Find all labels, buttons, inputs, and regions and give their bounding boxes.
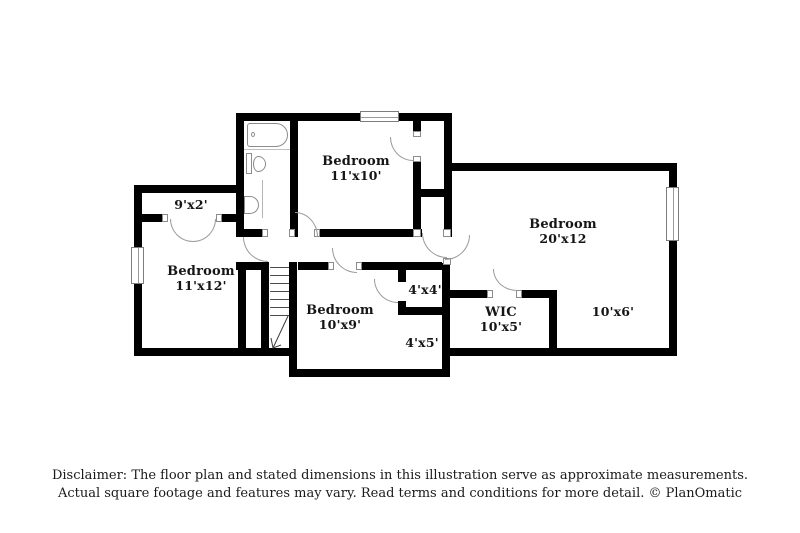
wall (238, 267, 246, 356)
bedroom-11x10-door-arc (295, 212, 318, 237)
bedroom-20x12-entry-door-arc (445, 235, 470, 260)
wall (134, 185, 244, 193)
wall (236, 113, 452, 121)
stair-tread (270, 299, 289, 300)
room-label-bedroom-11x10: Bedroom 11'x10' (322, 155, 390, 183)
wall (444, 163, 677, 171)
room-label-wic: WIC 10'x5' (480, 306, 522, 334)
stair-direction-arrow (269, 314, 291, 354)
wic-door-arc (493, 269, 517, 291)
door-jamb (413, 156, 421, 162)
door-jamb (328, 262, 334, 270)
wall (442, 290, 493, 298)
disclaimer-line-1: Disclaimer: The floor plan and stated di… (0, 467, 800, 485)
stair-tread (270, 275, 289, 276)
stair-tread (270, 291, 289, 292)
sink (244, 196, 259, 214)
door-jamb (413, 229, 421, 237)
room-dimensions: 4'x5' (405, 336, 439, 350)
wall (549, 290, 557, 356)
door-jamb (262, 229, 268, 237)
toilet-tank (246, 153, 252, 174)
wall (398, 307, 450, 315)
window-mullion (138, 248, 139, 283)
room-name: Bedroom (529, 218, 597, 232)
staircase (269, 262, 289, 356)
wall (398, 270, 406, 282)
disclaimer-line-2: Actual square footage and features may v… (0, 485, 800, 503)
wall (442, 348, 677, 356)
room-name: Bedroom (322, 155, 390, 169)
wall (444, 171, 452, 233)
floor-plan-page: Bedroom 11'x10' 9'x2' Bedroom 11'x12' Be… (0, 0, 800, 533)
room-name: WIC (480, 306, 522, 320)
window (666, 187, 679, 241)
room-dimensions: 4'x4' (408, 283, 442, 297)
stair-tread (270, 307, 289, 308)
room-dimensions: 11'x12' (167, 279, 235, 293)
hall-closet-door-arc (422, 233, 447, 258)
window-mullion (673, 188, 674, 240)
wall (442, 263, 450, 377)
floor-plan: Bedroom 11'x10' 9'x2' Bedroom 11'x12' Be… (0, 0, 800, 533)
bedroom-11x10-closet-door-arc (390, 137, 413, 161)
wall (289, 369, 450, 377)
tub-platform-line (244, 149, 290, 150)
bedroom-10x9-door-arc (332, 248, 357, 273)
room-name: Bedroom (306, 304, 374, 318)
stair-tread (270, 283, 289, 284)
bathtub-faucet (251, 132, 255, 137)
door-jamb (516, 290, 522, 298)
room-label-bedroom-20x12: Bedroom 20'x12 (529, 218, 597, 246)
closet-4x4-door-arc (374, 279, 398, 303)
room-label-nook-4x5: 4'x5' (405, 336, 439, 350)
wall (261, 262, 269, 356)
stair-tread (270, 267, 289, 268)
room-dimensions: 20'x12 (529, 232, 597, 246)
wall (357, 262, 442, 270)
room-dimensions: 10'x5' (480, 320, 522, 334)
room-label-bedroom-11x12: Bedroom 11'x12' (167, 265, 235, 293)
door-jamb (216, 214, 222, 222)
window (131, 247, 144, 284)
room-label-closet-4x4: 4'x4' (408, 283, 442, 297)
door-jamb (162, 214, 168, 222)
closet-9x2-right-door-arc (193, 219, 216, 242)
room-label-area-10x6: 10'x6' (592, 305, 634, 319)
toilet-bowl (253, 156, 266, 172)
door-jamb (487, 290, 493, 298)
room-label-closet-9x2: 9'x2' (174, 198, 208, 212)
closet-9x2-left-door-arc (170, 219, 193, 242)
room-dimensions: 11'x10' (322, 169, 390, 183)
disclaimer-text: Disclaimer: The floor plan and stated di… (0, 467, 800, 503)
bathroom-door-arc (243, 237, 268, 262)
window (360, 111, 399, 122)
door-jamb (413, 131, 421, 137)
room-name: Bedroom (167, 265, 235, 279)
room-dimensions: 9'x2' (174, 198, 208, 212)
window-mullion (361, 117, 398, 118)
room-label-bedroom-10x9: Bedroom 10'x9' (306, 304, 374, 332)
room-dimensions: 10'x6' (592, 305, 634, 319)
room-dimensions: 10'x9' (306, 318, 374, 332)
vanity-line (262, 180, 263, 218)
wall (317, 229, 422, 237)
